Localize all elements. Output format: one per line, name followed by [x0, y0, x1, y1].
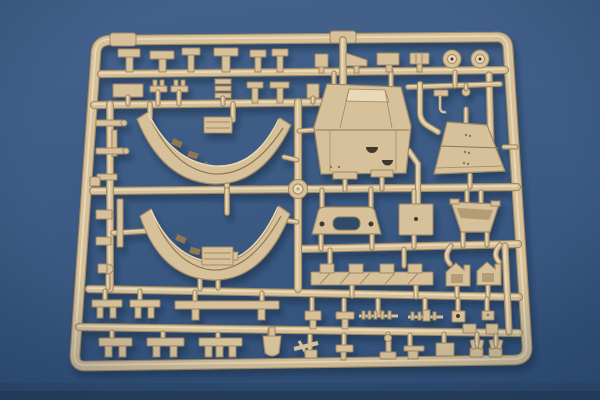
- part-top-row: [188, 55, 194, 72]
- glacis-rivet: [469, 135, 471, 137]
- table-part: [147, 338, 184, 346]
- hull-panel-rivet: [338, 166, 340, 168]
- part-stack: [215, 86, 231, 91]
- table-leg: [205, 346, 212, 357]
- small-flag-leg: [310, 320, 316, 329]
- bracket-hole: [320, 222, 325, 227]
- part-ibeam-stud: [174, 80, 178, 86]
- hook-bar: [434, 90, 448, 96]
- table-leg: [229, 346, 236, 357]
- axle-tooth: [418, 312, 421, 320]
- left-col-plate: [96, 237, 111, 245]
- table-leg: [170, 346, 177, 357]
- part-top-row: [250, 50, 266, 57]
- small-t-leg: [341, 352, 346, 360]
- hull-panel-hatch: [346, 89, 389, 102]
- house-notch: [482, 273, 494, 282]
- left-col-bar: [96, 148, 124, 154]
- small-t-part: [336, 312, 354, 319]
- part-plate: [377, 53, 399, 65]
- glacis-rivet: [463, 162, 465, 164]
- road-wheel-axle: [451, 58, 454, 61]
- hull-panel-rivet: [330, 166, 332, 168]
- rail-clamp: [320, 264, 334, 273]
- pick-base: [305, 350, 317, 358]
- sprue-product-photo: [0, 0, 600, 400]
- axle-tooth: [374, 311, 377, 319]
- pin-base: [380, 352, 396, 359]
- part-top-row: [272, 49, 288, 56]
- small-plate: [204, 117, 232, 133]
- table-edge-shadow: [0, 391, 600, 400]
- bar-part: [404, 346, 424, 351]
- part-plate: [410, 53, 429, 64]
- table-leg: [153, 346, 160, 357]
- frame-corner-tab: [110, 33, 136, 46]
- part-top-row: [118, 49, 140, 57]
- spade-part: [263, 336, 281, 356]
- rail-clamp: [349, 264, 363, 273]
- table-edge-band: [0, 383, 600, 392]
- glacis-rivet: [468, 152, 470, 154]
- table-leg: [110, 307, 116, 318]
- long-bar-leg: [192, 309, 199, 320]
- rail-clamp: [380, 264, 394, 273]
- axle-tooth: [362, 311, 365, 319]
- table-part: [130, 300, 160, 307]
- bar-base: [408, 351, 418, 359]
- rail-clamp: [408, 264, 422, 273]
- left-col-bar: [96, 120, 122, 126]
- table-leg: [97, 307, 103, 318]
- small-plate-dot: [487, 314, 490, 317]
- part-top-row: [150, 51, 174, 59]
- part-row2-t: [247, 82, 263, 88]
- left-col-plate: [96, 210, 112, 219]
- axle-tooth: [368, 311, 371, 319]
- table-part: [92, 300, 122, 307]
- part-top-row: [222, 56, 230, 72]
- table-leg: [148, 307, 154, 318]
- part-top-row: [315, 54, 328, 67]
- long-bar-leg: [258, 309, 265, 320]
- part-ibeam-stud: [160, 80, 164, 86]
- part-stack: [215, 79, 231, 84]
- glacis-rivet: [467, 163, 469, 165]
- spade-handle: [269, 327, 275, 336]
- bucket-flange: [450, 199, 459, 204]
- axle-tooth: [381, 311, 384, 319]
- small-t-part: [336, 345, 353, 352]
- table-leg: [135, 307, 141, 318]
- table-leg: [105, 346, 112, 357]
- part-top-row: [319, 67, 324, 73]
- ring-plate-hole: [456, 314, 460, 318]
- road-wheel-axle: [479, 58, 482, 61]
- pin-ball: [385, 335, 392, 342]
- small-plate: [202, 247, 233, 265]
- small-flag-part: [305, 311, 321, 320]
- plate-part: [436, 343, 454, 356]
- part-top-row: [277, 56, 283, 72]
- hull-panel-tab: [371, 170, 393, 177]
- bracket-cutout: [333, 217, 360, 230]
- small-t-leg: [342, 319, 348, 329]
- part-ibeam-stud: [181, 80, 185, 86]
- table-part: [99, 338, 132, 346]
- part-ibeam-stud: [153, 80, 157, 86]
- part-top-row: [126, 57, 133, 72]
- bracket-hole: [369, 222, 374, 227]
- glacis-rivet: [465, 134, 467, 136]
- injection-gate-center: [297, 188, 300, 191]
- scene-canvas: [0, 0, 600, 400]
- axle-tooth: [411, 312, 414, 320]
- part-wedge-leg: [354, 66, 359, 73]
- fender-rivet: [205, 162, 208, 165]
- part-top-row: [214, 48, 238, 56]
- part-plate-leg: [417, 64, 422, 72]
- part-top-row: [159, 59, 166, 72]
- part-plate-leg: [386, 65, 392, 72]
- left-col-block: [98, 264, 107, 273]
- axle-block: [423, 310, 430, 321]
- bucket-flange: [491, 201, 500, 206]
- part-row2-t: [252, 88, 258, 103]
- axle-tooth: [388, 311, 391, 319]
- hull-panel-tab: [333, 172, 357, 179]
- axle-tooth: [433, 312, 436, 320]
- table-leg: [216, 346, 223, 357]
- table-leg: [119, 346, 126, 357]
- part-top-row: [255, 57, 261, 72]
- small-plate-clip: [233, 252, 238, 260]
- part-row2-t: [270, 82, 289, 88]
- left-col-knob: [121, 120, 127, 126]
- table-part: [199, 338, 242, 346]
- left-col-tab: [90, 177, 100, 186]
- ring-plate-base: [463, 324, 476, 333]
- part-top-row: [182, 48, 200, 55]
- left-col-knob: [123, 148, 129, 154]
- glacis-rivet: [464, 151, 466, 153]
- part-row2-t: [277, 88, 283, 103]
- small-block: [486, 324, 498, 334]
- house-notch: [451, 274, 463, 283]
- square-plate-hole: [414, 217, 418, 221]
- long-bar-part: [175, 301, 279, 309]
- left-col-vbar: [117, 199, 123, 247]
